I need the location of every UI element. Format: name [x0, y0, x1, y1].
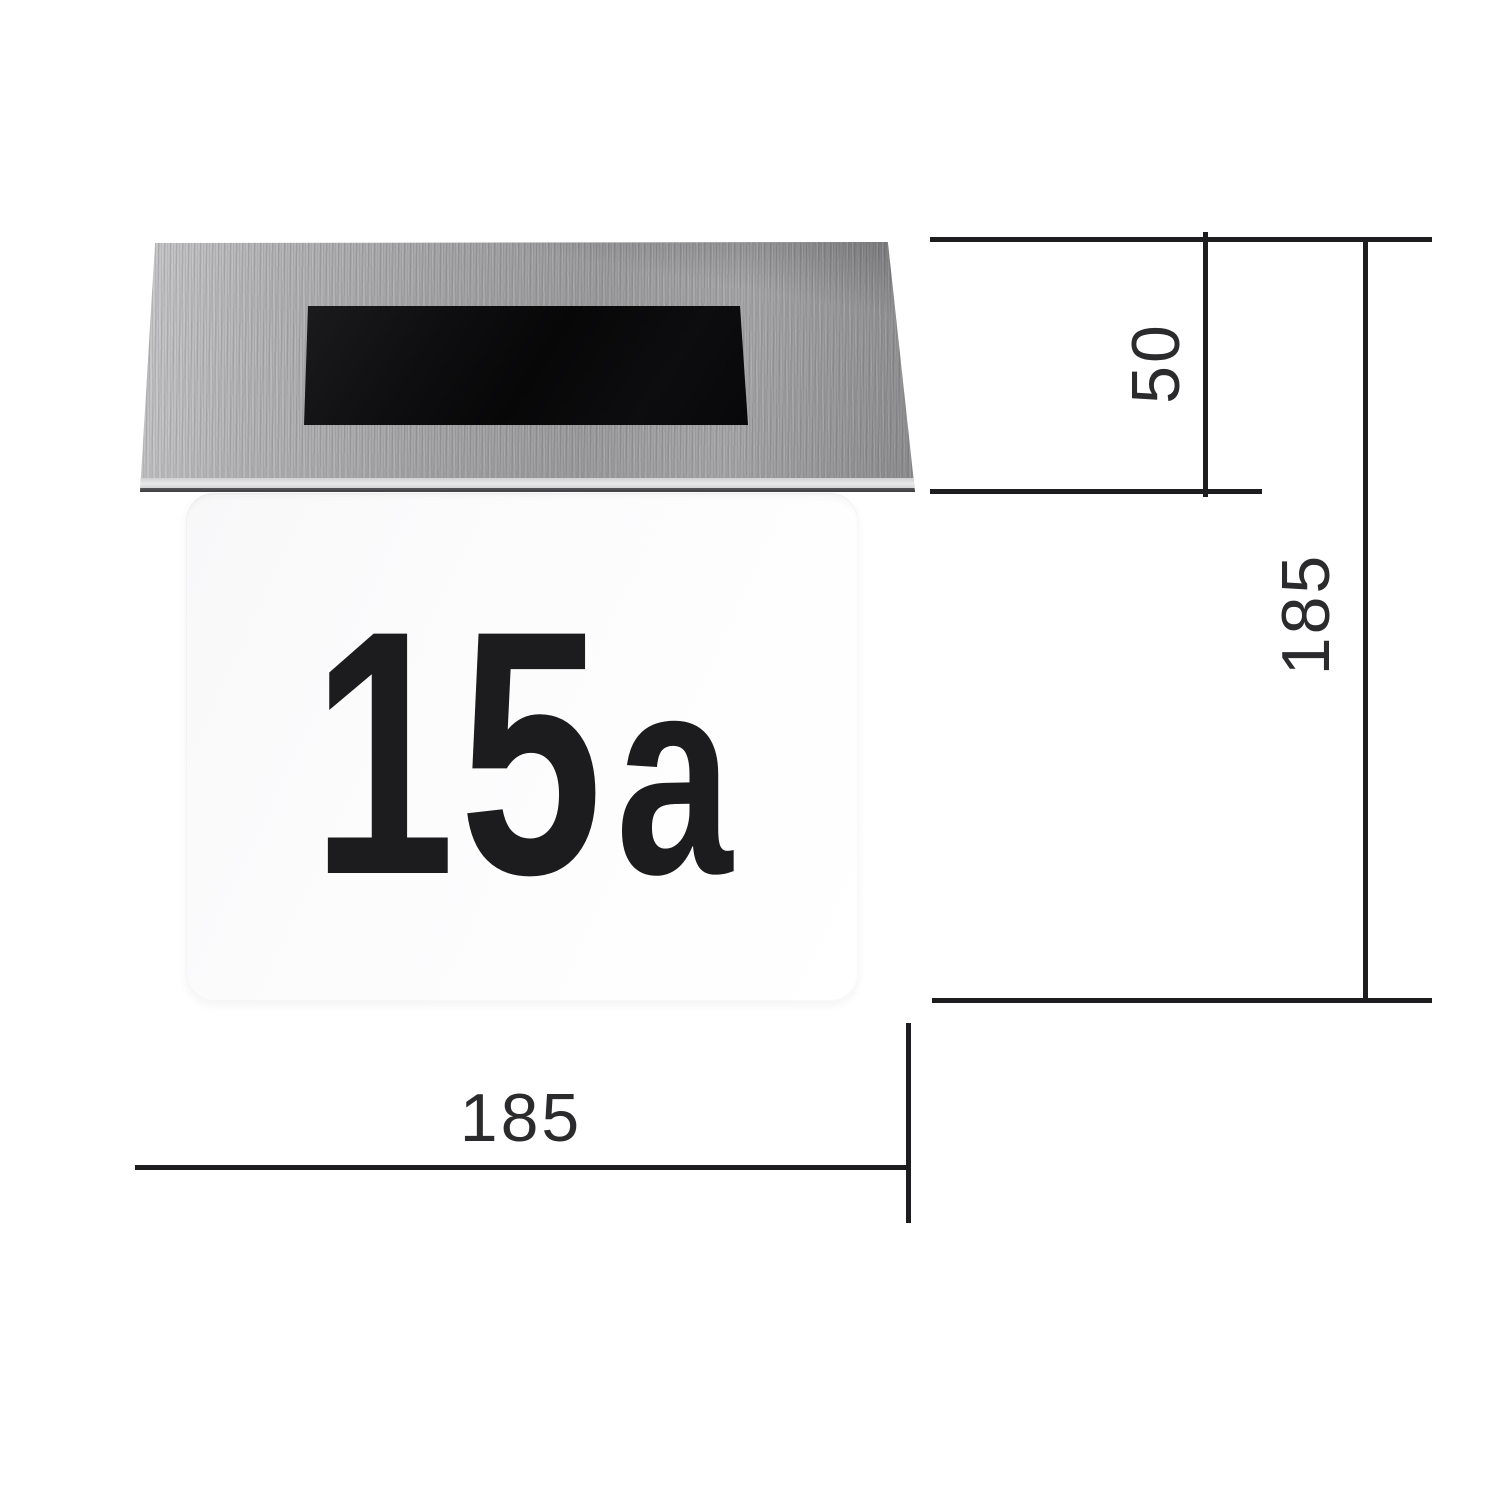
dimension-line-total-height	[1363, 237, 1368, 1003]
house-number-main: 15	[312, 579, 607, 927]
roof-front-edge-highlight	[140, 478, 915, 488]
number-plate: 15 a	[186, 493, 858, 1001]
dimension-line-roof-height	[1203, 232, 1208, 497]
extension-line-roof-bottom	[930, 489, 1262, 494]
house-number: 15 a	[312, 579, 733, 927]
extension-line-bottom	[932, 998, 1432, 1003]
product-dimension-diagram: 15 a 50 185 185	[0, 0, 1500, 1500]
dimension-line-total-width	[135, 1165, 909, 1170]
dimension-label-total-width: 185	[421, 1083, 621, 1153]
dimension-tick-total-width	[906, 1023, 911, 1223]
extension-line-top	[930, 237, 1432, 242]
solar-panel	[304, 306, 748, 425]
dimension-label-total-height: 185	[1271, 524, 1341, 704]
house-number-suffix: a	[616, 634, 732, 917]
roof-front-edge-shadow	[140, 488, 915, 492]
dimension-label-roof-height: 50	[1121, 283, 1191, 443]
